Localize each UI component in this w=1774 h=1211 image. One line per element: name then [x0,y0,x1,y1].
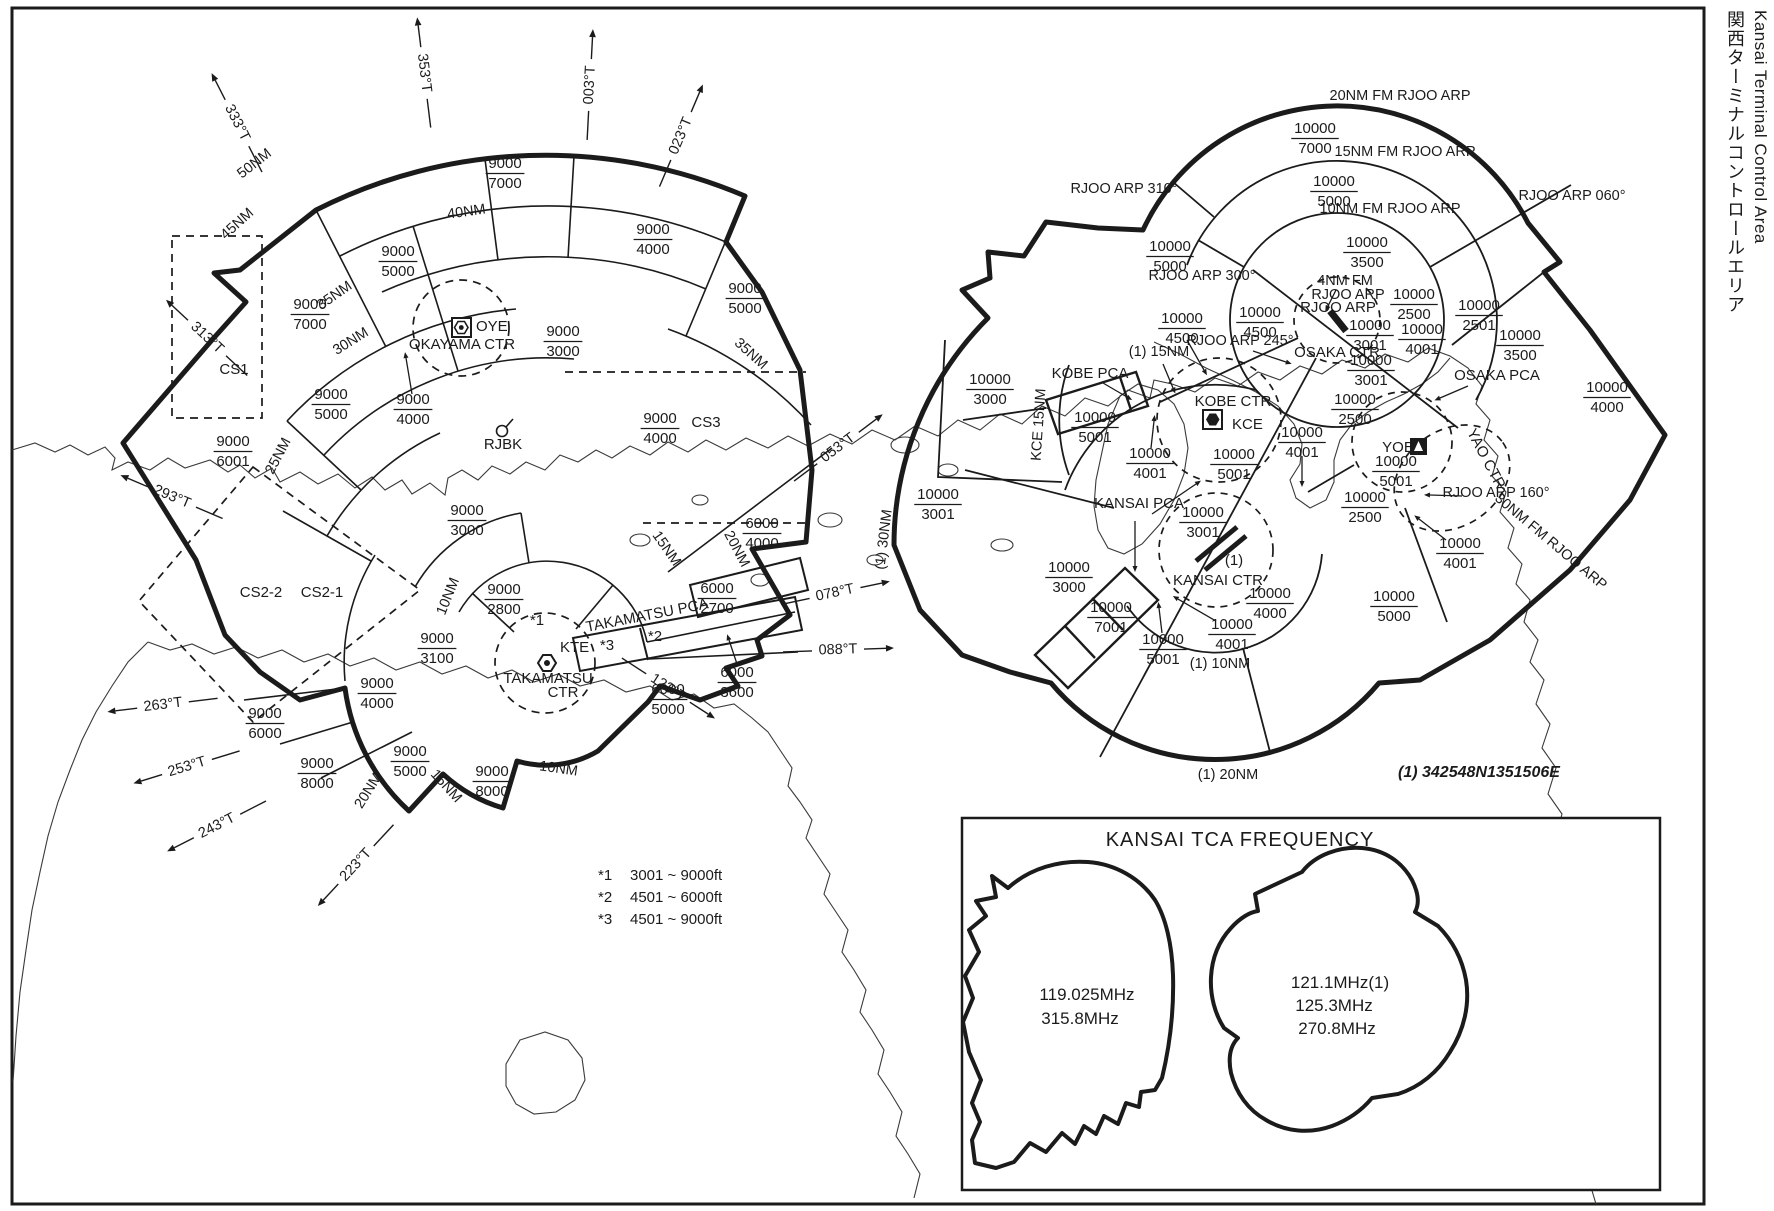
altitude-upper-limit: 10000 [917,486,959,503]
altitude-label: 100003000 [1045,559,1093,596]
altitude-upper-limit: 10000 [1344,489,1386,506]
altitude-label: 90008000 [473,763,512,800]
bearing-line [860,583,882,588]
altitude-upper-limit: 10000 [1182,504,1224,521]
bearing-arrow: 253°T [133,751,239,784]
radial-label: RJOO ARP 060° [1518,188,1625,204]
pointer-line [1178,599,1216,621]
facility-label: KANSAI PCA [1094,495,1184,512]
area-label: *1 [530,612,544,629]
altitude-upper-limit: 9000 [728,280,761,297]
frequency-box: KANSAI TCA FREQUENCY 119.025MHz 315.8MHz… [962,818,1660,1190]
altitude-label: 90004000 [394,391,433,428]
altitude-label: 90005000 [379,243,418,280]
altitude-lower-limit: 3001 [1186,524,1219,541]
altitude-notes: *1 3001 ~ 9000ft *2 4501 ~ 6000ft *3 450… [598,867,723,928]
altitude-upper-limit: 10000 [1281,424,1323,441]
altitude-upper-limit: 9000 [636,221,669,238]
islet [991,539,1013,551]
bearing-line [660,160,671,187]
pointer-line [406,358,412,394]
altitude-lower-limit: 3600 [720,684,753,701]
altitude-upper-limit: 10000 [969,371,1011,388]
facility-label: CTR [548,684,579,701]
pointer-arrow [1253,351,1292,364]
altitude-upper-limit: 9000 [393,743,426,760]
bearing-label: 353°T [414,53,435,94]
altitude-lower-limit: 4000 [1253,605,1286,622]
altitude-label: 100007000 [1291,120,1339,157]
altitude-lower-limit: 3001 [1354,372,1387,389]
area-label: CS2-1 [301,584,344,601]
note-2-marker: *2 [598,889,612,906]
altitude-upper-limit: 9000 [420,630,453,647]
note-2-range: 4501 ~ 6000ft [630,889,723,906]
ring-label: 35NM [731,335,770,373]
altitude-lower-limit: 4000 [360,695,393,712]
bearing-label: 088°T [818,641,858,658]
islet [692,495,708,505]
facility-label: RJOO ARP [1300,299,1376,316]
altitude-lower-limit: 5001 [1217,466,1250,483]
altitude-lower-limit: 8000 [475,783,508,800]
pointer-arrow [1414,515,1446,540]
altitude-lower-limit: 6001 [216,453,249,470]
bearing-arrow: 293°T [120,475,222,518]
arrowhead [706,711,715,718]
facility-label: RJBK [484,436,522,453]
bearing-arrow: 263°T [107,695,217,716]
pointer-arrow [1434,386,1468,400]
ring-label: 10NM FM RJOO ARP [1320,201,1461,217]
frequency-box-title: KANSAI TCA FREQUENCY [1106,829,1375,851]
altitude-lower-limit: 5001 [1078,429,1111,446]
ring-label: 20NM [352,770,386,811]
islet [891,437,919,453]
altitude-lower-limit: 7001 [1094,619,1127,636]
altitude-upper-limit: 6000 [745,515,778,532]
altitude-lower-limit: 2800 [487,601,520,618]
altitude-lower-limit: 8000 [300,775,333,792]
altitude-lower-limit: 4001 [1133,465,1166,482]
altitude-upper-limit: 10000 [1294,120,1336,137]
altitude-lower-limit: 5000 [393,763,426,780]
altitude-upper-limit: 10000 [1499,327,1541,344]
bearing-line [690,702,708,714]
altitude-upper-limit: 10000 [1393,286,1435,303]
altitude-label: 90005000 [726,280,765,317]
altitude-lower-limit: 2501 [1462,317,1495,334]
altitude-label: 90007000 [486,155,525,192]
facility-label: KANSAI CTR [1173,572,1263,589]
bearing-label: 223°T [337,845,375,884]
altitude-lower-limit: 4000 [643,430,676,447]
altitude-upper-limit: 9000 [396,391,429,408]
bearing-line [240,801,266,814]
note-3-range: 4501 ~ 9000ft [630,911,723,928]
facility-label: YOE [1382,439,1414,456]
coastline-island-south [506,1032,585,1114]
altitude-label: 90002800 [485,581,524,618]
altitude-label: 60003600 [718,664,757,701]
bearing-line [215,80,225,100]
frequency-value: 125.3MHz [1295,996,1372,1015]
bearing-line [174,838,194,848]
bearing-arrow: 353°T [414,17,435,127]
bearing-label: 333°T [221,102,253,144]
altitude-upper-limit: 9000 [643,410,676,427]
vor-dme-icon-kce [1203,410,1222,429]
bearing-line [374,825,394,846]
pointer-arrow [1151,415,1157,448]
altitude-label: 100005000 [1370,588,1418,625]
bearing-label: 243°T [196,810,238,842]
radial-label: RJOO ARP 245° [1186,333,1293,349]
altitude-lower-limit: 4001 [1405,341,1438,358]
arrowhead [1195,481,1201,486]
altitude-label: 100002500 [1341,489,1389,526]
altitude-upper-limit: 6000 [720,664,753,681]
note-1-marker: *1 [598,867,612,884]
facility-label: KOBE CTR [1195,393,1272,410]
altitude-label: 90006000 [246,705,285,742]
vor-icon-kte [538,655,556,671]
arrowhead [881,580,890,587]
arrowhead [415,17,422,25]
altitude-upper-limit: 9000 [488,155,521,172]
altitude-label: 100003000 [966,371,1014,408]
altitude-lower-limit: 2500 [1348,509,1381,526]
altitude-lower-limit: 5000 [1377,608,1410,625]
altitude-label: 90005000 [312,386,351,423]
bearing-label: 263°T [143,695,184,716]
bearing-line [427,99,431,128]
facility-label: YAO CTR [1463,426,1509,492]
altitude-upper-limit: 10000 [1149,238,1191,255]
altitude-lower-limit: 2500 [1338,411,1371,428]
altitude-lower-limit: 3001 [921,506,954,523]
altitude-label: 100003001 [914,486,962,523]
bearing-label: 293°T [151,482,193,512]
arrowhead [727,634,732,640]
altitude-upper-limit: 6000 [700,580,733,597]
altitude-lower-limit: 4000 [1590,399,1623,416]
bearing-line [591,37,592,59]
altitude-upper-limit: 9000 [546,323,579,340]
arrowhead [133,778,142,784]
ring-label: (1) 20NM [1198,767,1258,783]
altitude-lower-limit: 4000 [636,241,669,258]
altitude-label: 100002500 [1390,286,1438,323]
arrowhead [886,645,894,652]
ring-label: (1) 15NM [1129,344,1189,360]
altitude-upper-limit: 9000 [475,763,508,780]
altitude-label: 100002501 [1455,297,1503,334]
bearing-arrow: 003°T [581,29,599,140]
altitude-lower-limit: 5000 [314,406,347,423]
altitude-label: 90006001 [214,433,253,470]
bearing-arrow: 088°T [783,641,894,658]
altitude-label: 100004001 [1278,424,1326,461]
bearing-line [172,305,188,320]
arrowhead [1151,415,1156,421]
altitude-label: 100005001 [1372,453,1420,490]
ring-label: 15NM [649,528,684,569]
bearing-line [587,111,589,140]
altitude-upper-limit: 9000 [314,386,347,403]
page-title-japanese: 関西ターミナルコントロールエリア [1722,10,1748,314]
airport-icon-rjbk [497,419,514,437]
altitude-upper-limit: 9000 [300,755,333,772]
altitude-lower-limit: 3500 [1503,347,1536,364]
altitude-label: 100004000 [1246,585,1294,622]
altitude-lower-limit: 5001 [1146,651,1179,668]
kix-coordinate-note: (1) 342548N1351506E [1398,764,1561,781]
altitude-lower-limit: 7000 [293,316,326,333]
bearing-line [418,25,421,47]
altitude-label: 100003001 [1179,504,1227,541]
altitude-upper-limit: 10000 [1346,234,1388,251]
frequency-value: 119.025MHz [1039,985,1134,1004]
altitude-upper-limit: 9000 [248,705,281,722]
ring-label: 20NM FM RJOO ARP [1330,88,1471,104]
altitude-lower-limit: 7000 [1298,140,1331,157]
altitude-lower-limit: 6000 [248,725,281,742]
pointer-arrow [727,634,737,664]
bearing-label: 053°T [818,430,859,466]
bearing-arrow: 243°T [167,801,266,851]
altitude-upper-limit: 10000 [1586,379,1628,396]
bearing-label: 313°T [187,319,226,357]
bearing-line [141,775,162,781]
altitude-label: 100005001 [1139,631,1187,668]
pointer-arrow [1156,602,1162,633]
altitude-label: 100003500 [1343,234,1391,271]
frequency-value: 315.8MHz [1041,1009,1118,1028]
bearing-arrow: 333°T [212,73,262,172]
altitude-label: 100004000 [1583,379,1631,416]
altitude-lower-limit: 4001 [1215,636,1248,653]
pointer-line [1163,364,1173,388]
facility-label: OKAYAMA CTR [409,336,515,353]
pointer-line [1159,608,1162,633]
bearing-line [864,648,886,649]
area-label: *3 [600,637,614,654]
arrowhead [589,29,596,37]
altitude-lower-limit: 3000 [546,343,579,360]
pointer-arrow [404,352,412,394]
altitude-label: 90003000 [448,502,487,539]
altitude-upper-limit: 10000 [1401,321,1443,338]
altitude-label: 90003100 [418,630,457,667]
altitude-label: 100004001 [1398,321,1446,358]
frequency-value: 270.8MHz [1298,1019,1375,1038]
altitude-lower-limit: 3000 [973,391,1006,408]
altitude-upper-limit: 10000 [1239,304,1281,321]
pointer-arrow [1173,596,1216,621]
arrowhead [1299,481,1304,487]
area-label: *2 [648,628,662,645]
altitude-lower-limit: 5000 [381,263,414,280]
altitude-lower-limit: 7000 [488,175,521,192]
altitude-upper-limit: 10000 [1334,391,1376,408]
ring-label: (1) 10NM [1190,656,1250,672]
arrowhead [1132,566,1137,572]
ring-label: 15NM FM RJOO ARP [1335,144,1476,160]
facility-label: KCE [1232,416,1263,433]
arrowhead [874,414,882,421]
bearing-line [212,751,240,759]
altitude-label: 100003500 [1496,327,1544,364]
page-title-english: Kansai Terminal Control Area [1750,10,1770,244]
bearing-line [189,698,218,702]
altitude-upper-limit: 9000 [450,502,483,519]
islet [630,534,650,546]
altitude-lower-limit: 3000 [1052,579,1085,596]
altitude-label: 100004001 [1126,445,1174,482]
altitude-upper-limit: 10000 [1074,409,1116,426]
altitude-lower-limit: 3500 [1350,254,1383,271]
ring-label: 40NM [446,201,487,222]
pointer-line [1440,386,1468,398]
altitude-label: 90003000 [544,323,583,360]
frequency-value: 121.1MHz(1) [1291,973,1389,992]
kansai-tca-chart: 9000700090005000900040009000500090007000… [0,0,1774,1211]
altitude-lower-limit: 4001 [1443,555,1476,572]
coastline-shikoku-west [13,642,148,1082]
altitude-label: 90004000 [358,675,397,712]
chart-page: 9000700090005000900040009000500090007000… [0,0,1774,1211]
ring-label: 50NM [234,146,274,182]
altitude-label: 100007001 [1087,599,1135,636]
arrowhead [404,352,409,358]
bearing-label: 003°T [581,65,599,105]
altitude-lower-limit: 4000 [745,535,778,552]
altitude-label: 90004000 [634,221,673,258]
altitude-label: 90008000 [298,755,337,792]
area-label: CS3 [691,414,720,431]
altitude-lower-limit: 5001 [1379,473,1412,490]
vor-dme-icon-oye [452,318,471,337]
ring-label: 30NM [330,325,371,359]
altitude-label: 100005001 [1071,409,1119,446]
arrowhead [107,708,115,715]
altitude-upper-limit: 10000 [1349,317,1391,334]
altitude-label: 100002500 [1331,391,1379,428]
bearing-arrow: 223°T [318,825,394,906]
facility-label: OYE [476,318,508,335]
altitude-upper-limit: 10000 [1458,297,1500,314]
altitude-lower-limit: 3100 [420,650,453,667]
arrowhead [1156,602,1161,608]
altitude-upper-limit: 10000 [1090,599,1132,616]
area-label: CS2-2 [240,584,283,601]
altitude-label: 90005000 [391,743,430,780]
radial-label: RJOO ARP 300° [1148,268,1255,284]
altitude-upper-limit: 9000 [487,581,520,598]
altitude-upper-limit: 10000 [1161,310,1203,327]
note-3-marker: *3 [598,911,612,928]
altitude-lower-limit: 4000 [396,411,429,428]
altitude-upper-limit: 10000 [1142,631,1184,648]
altitude-upper-limit: 9000 [216,433,249,450]
bearing-line [323,884,338,900]
islet [818,513,842,527]
altitude-label: 100005001 [1210,446,1258,483]
ring-label: 25NM [262,435,294,477]
ring-label: 45NM [218,205,257,243]
facility-label: (1) [1225,552,1243,569]
altitude-upper-limit: 9000 [360,675,393,692]
bearing-label: 023°T [666,115,696,157]
pointer-line [1151,421,1154,448]
bearing-line [115,708,137,711]
bearing-line [783,651,812,652]
bearing-line [691,92,700,112]
altitude-upper-limit: 10000 [1373,588,1415,605]
bearing-label: 253°T [166,753,208,780]
facility-label: OSAKA PCA [1454,367,1540,384]
altitude-label: 90004000 [641,410,680,447]
altitude-upper-limit: 10000 [1048,559,1090,576]
altitude-upper-limit: 10000 [1129,445,1171,462]
left-tca-sector [123,155,832,811]
altitude-lower-limit: 5000 [728,300,761,317]
ring-label: 10NM [434,576,463,618]
left-tca-boundary [123,155,812,811]
facility-label: KTE [560,639,589,656]
altitude-upper-limit: 9000 [381,243,414,260]
altitude-upper-limit: 10000 [1313,173,1355,190]
altitude-label: 100004001 [1208,616,1256,653]
facility-label: OSAKA CTR [1294,344,1380,361]
altitude-label: 100004001 [1436,535,1484,572]
ring-label: 35NM [314,278,355,313]
altitude-label: 60004000 [743,515,782,552]
arrowhead [1424,492,1430,497]
altitude-upper-limit: 10000 [1439,535,1481,552]
radial-label: RJOO ARP 310° [1070,181,1177,197]
altitude-lower-limit: 3000 [450,522,483,539]
bearing-label: 078°T [814,581,855,605]
altitude-upper-limit: 10000 [1213,446,1255,463]
bearing-line [196,507,223,518]
islet [938,464,958,476]
facility-label: KOBE PCA [1052,365,1129,382]
pointer-arrow [1103,383,1132,400]
note-1-range: 3001 ~ 9000ft [630,867,723,884]
arrowhead [1285,360,1291,365]
ring-label: KCE 15NM [1028,388,1049,461]
altitude-upper-limit: 10000 [1211,616,1253,633]
